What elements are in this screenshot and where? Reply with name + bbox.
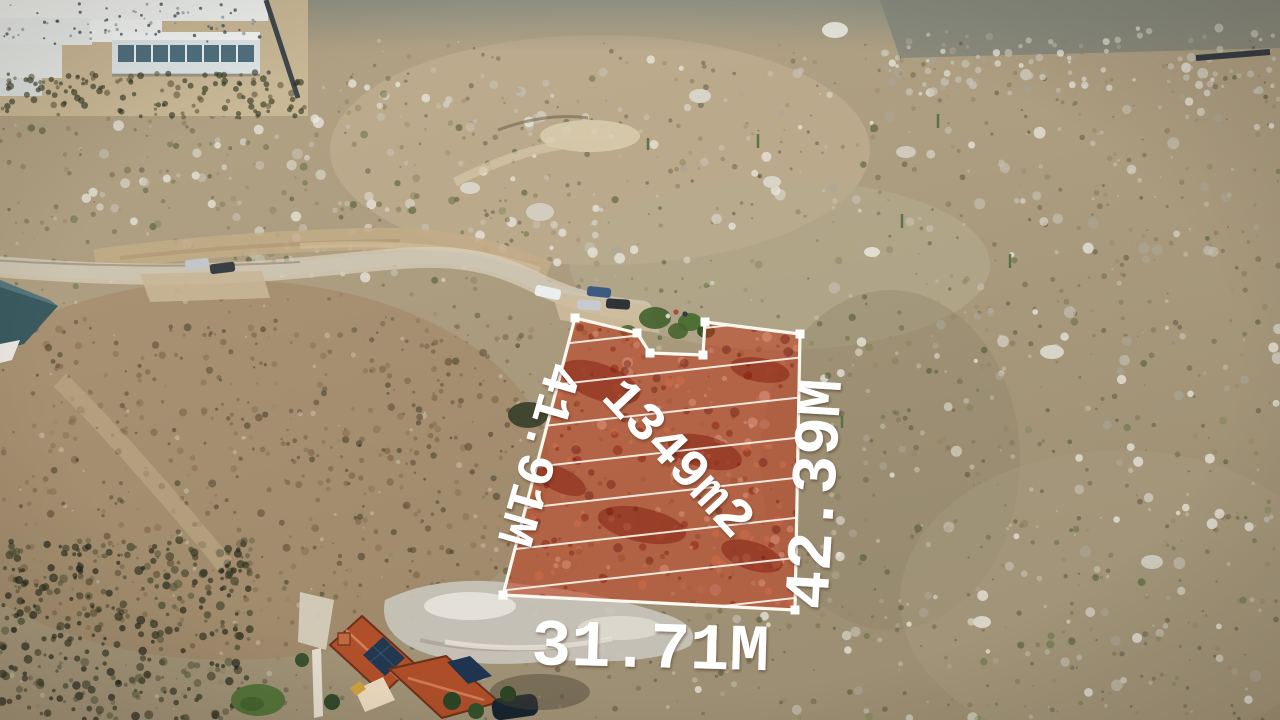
lot-bottom-dimension-label: 31.71M [530, 609, 770, 690]
lot-right-dimension-label: 42.39M [775, 377, 861, 611]
aerial-lot-photo: 1349m2 41.91M 42.39M 31.71M [0, 0, 1280, 720]
